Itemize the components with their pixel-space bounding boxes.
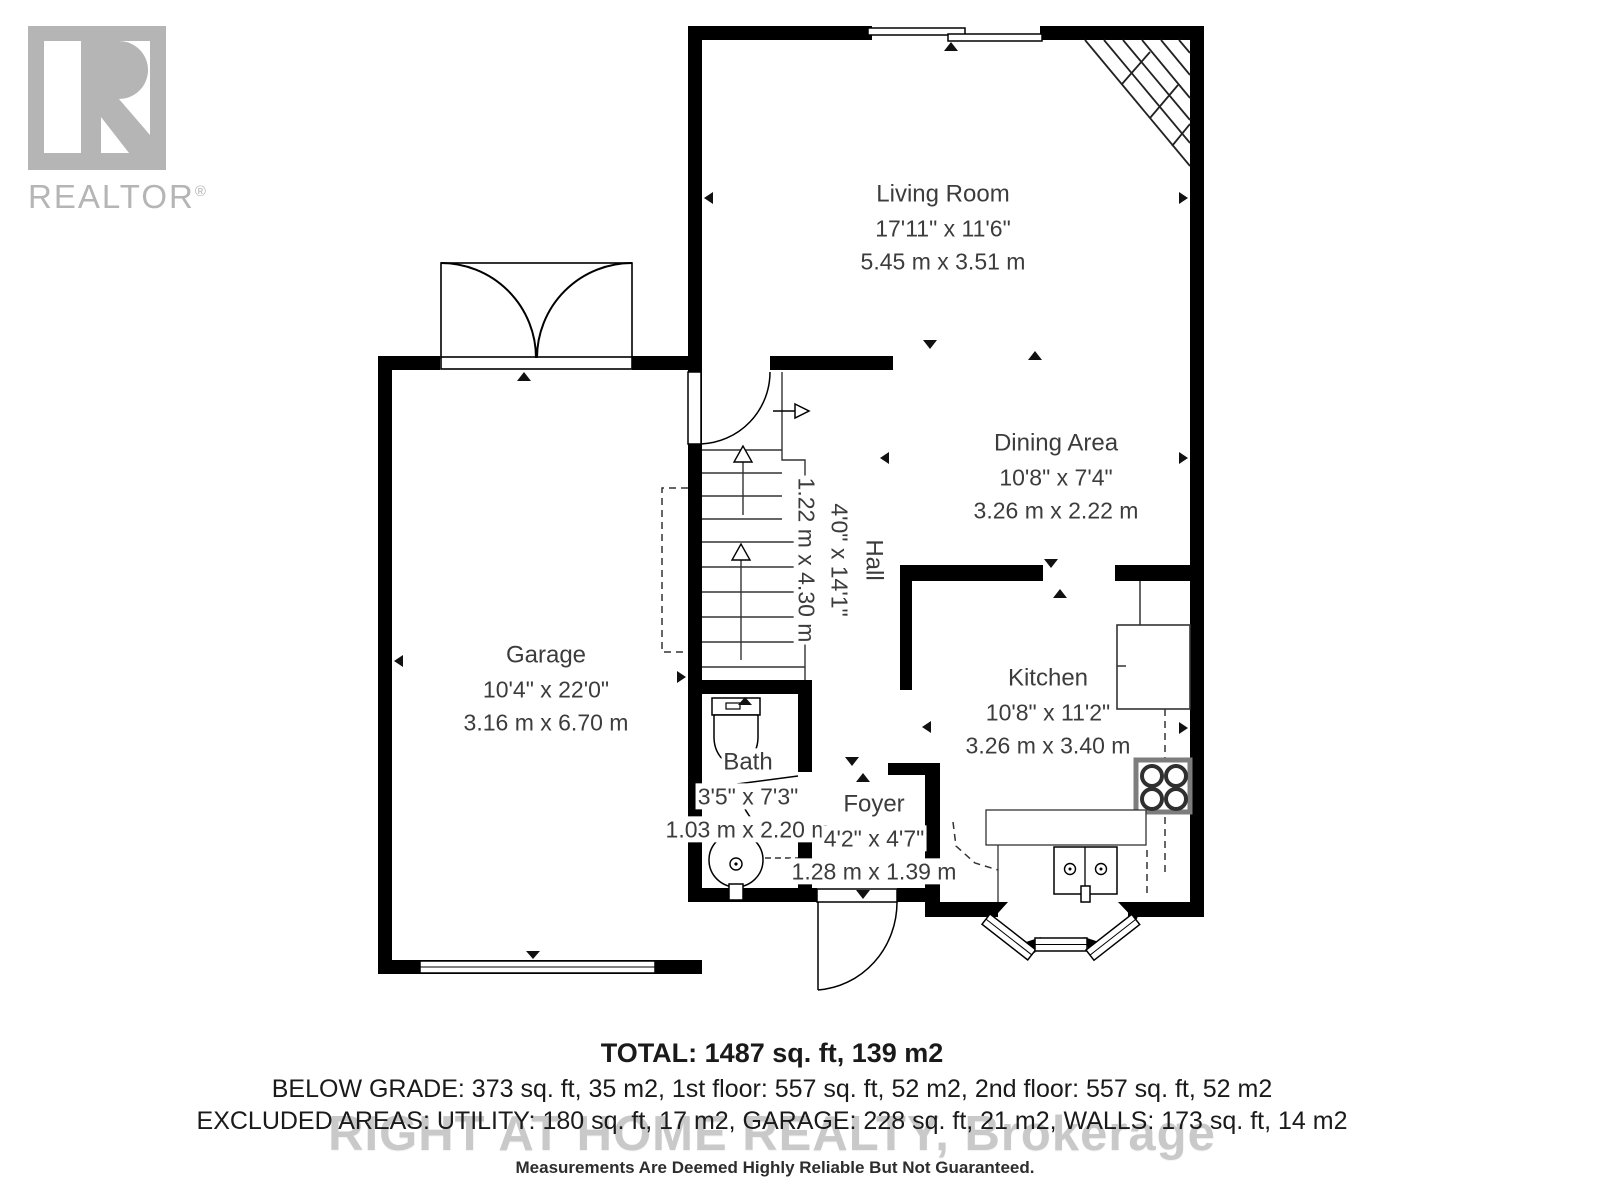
garage-overhead-door — [420, 961, 655, 973]
stove-icon — [1136, 760, 1190, 812]
dining-area-name: Dining Area — [992, 429, 1120, 456]
realtor-logo-wordmark: REALTOR® — [28, 178, 206, 216]
foyer-imperial: 4'2" x 4'7" — [822, 825, 927, 851]
excluded-areas-line: EXCLUDED AREAS: UTILITY: 180 sq. ft, 17 … — [47, 1107, 1497, 1136]
front-door — [817, 889, 897, 990]
dining-area-imperial: 10'8" x 7'4" — [997, 464, 1114, 490]
dashed-duct-outline — [662, 488, 688, 652]
hall-imperial: 4'0" x 14'1" — [827, 501, 853, 618]
hall-name: Hall — [861, 537, 888, 582]
total-area-line: TOTAL: 1487 sq. ft, 139 m2 — [47, 1038, 1497, 1069]
hall-metric: 1.22 m x 4.30 m — [794, 476, 820, 645]
bay-window — [982, 902, 1144, 960]
room-label-dining-area: Dining Area 10'8" x 7'4" 3.26 m x 2.22 m — [972, 425, 1141, 526]
kitchen-metric: 3.26 m x 3.40 m — [964, 732, 1133, 758]
kitchen-name: Kitchen — [1006, 664, 1090, 691]
measurement-disclaimer: Measurements Are Deemed Highly Reliable … — [516, 1158, 1035, 1178]
kitchen-imperial: 10'8" x 11'2" — [984, 699, 1112, 725]
living-room-imperial: 17'11" x 11'6" — [873, 215, 1013, 241]
garage-name: Garage — [504, 641, 588, 668]
room-label-kitchen: Kitchen 10'8" x 11'2" 3.26 m x 3.40 m — [964, 660, 1133, 761]
bath-imperial: 3'5" x 7'3" — [696, 783, 801, 809]
living-room-window — [868, 28, 1042, 41]
garage-metric: 3.16 m x 6.70 m — [462, 709, 631, 735]
room-label-hall: Hall 4'0" x 14'1" 1.22 m x 4.30 m — [790, 476, 891, 645]
foyer-name: Foyer — [841, 790, 906, 817]
living-room-metric: 5.45 m x 3.51 m — [859, 248, 1028, 274]
floor-breakdown-line: BELOW GRADE: 373 sq. ft, 35 m2, 1st floo… — [47, 1075, 1497, 1104]
bath-name: Bath — [721, 748, 774, 775]
living-room-name: Living Room — [874, 180, 1011, 207]
floorplan-page: REALTOR® — [0, 0, 1600, 1200]
corner-hatch — [1085, 40, 1190, 166]
realtor-logo — [28, 26, 168, 174]
foyer-metric: 1.28 m x 1.39 m — [790, 858, 959, 884]
room-label-living-room: Living Room 17'11" x 11'6" 5.45 m x 3.51… — [859, 176, 1028, 277]
garage-imperial: 10'4" x 22'0" — [481, 676, 611, 702]
area-summary: TOTAL: 1487 sq. ft, 139 m2 BELOW GRADE: … — [47, 1038, 1497, 1136]
registered-mark: ® — [195, 183, 206, 200]
kitchen-sink-icon — [1054, 847, 1117, 902]
entry-direction-arrow — [795, 404, 809, 418]
room-label-garage: Garage 10'4" x 22'0" 3.16 m x 6.70 m — [462, 637, 631, 738]
garage-double-door — [441, 263, 632, 369]
stair-door — [688, 372, 809, 444]
room-label-foyer: Foyer 4'2" x 4'7" 1.28 m x 1.39 m — [790, 786, 959, 887]
dining-area-metric: 3.26 m x 2.22 m — [972, 497, 1141, 523]
